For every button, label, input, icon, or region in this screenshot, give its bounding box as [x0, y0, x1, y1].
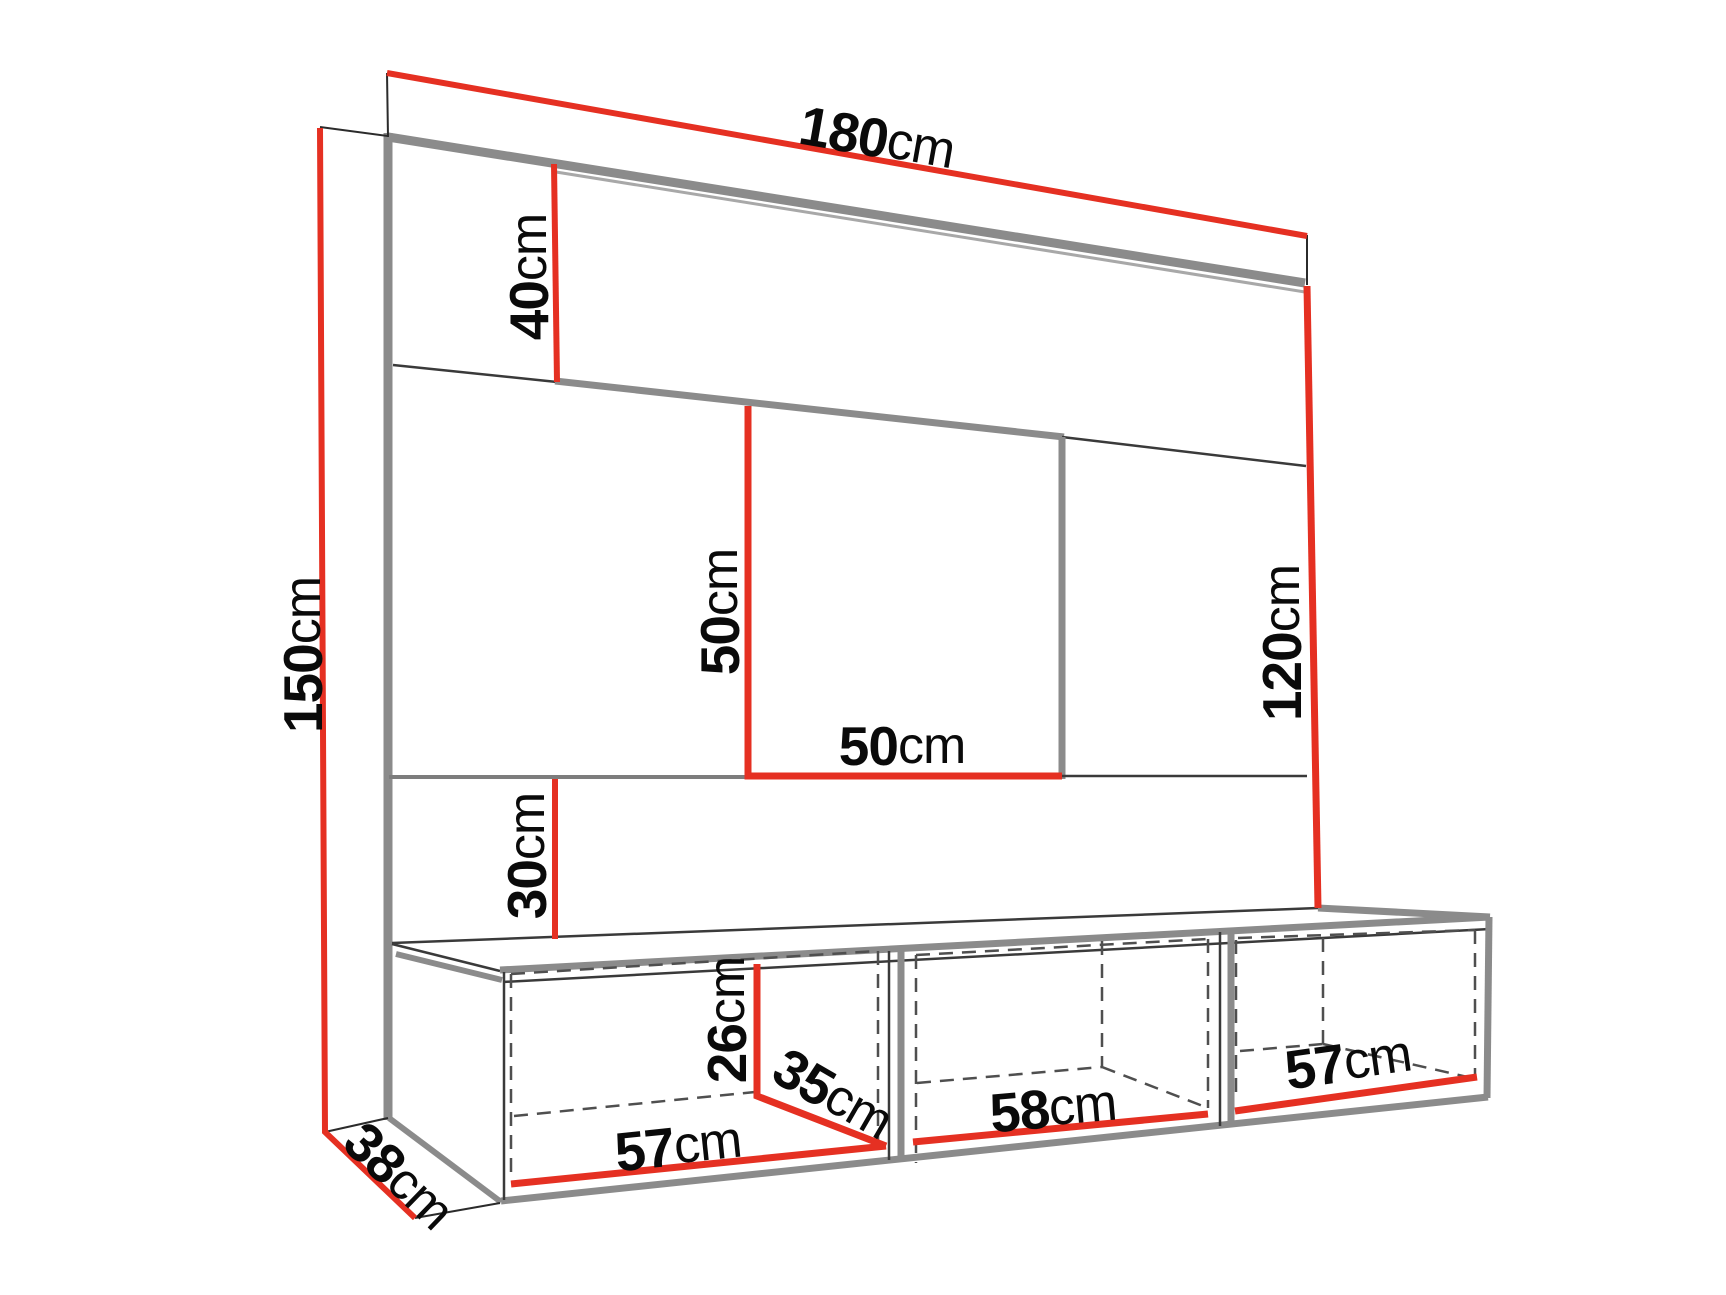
dim-line-total-height-150-and-depth-38 — [320, 128, 415, 1218]
label-cabinet-middle-width: 58cm — [987, 1072, 1118, 1145]
label-total-width: 180cm — [795, 94, 959, 182]
stand-right-edge — [1487, 917, 1489, 1098]
label-cabinet-left-width: 57cm — [612, 1109, 744, 1184]
label-recess-width: 50cm — [839, 715, 966, 777]
panel-top-edge-shadow — [556, 172, 1305, 292]
label-bottom-panel-height: 30cm — [496, 793, 558, 920]
top-strip-bottom-mid — [555, 381, 1064, 437]
top-strip-bottom-left — [393, 365, 557, 382]
stand-top-slab-underside — [503, 929, 1490, 982]
label-top-panel-height: 40cm — [498, 214, 560, 341]
ext-top-left-diagonal — [320, 127, 388, 136]
diagram-canvas: 180cm 150cm 40cm 50cm 50cm 120cm 30cm 26… — [0, 0, 1726, 1295]
cab2-inner-floor-right — [1102, 1067, 1208, 1108]
label-cabinet-inner-height: 26cm — [696, 957, 758, 1084]
label-total-height: 150cm — [272, 577, 334, 733]
label-cabinet-inner-depth: 35cm — [763, 1036, 904, 1153]
top-strip-bottom-right — [1062, 437, 1306, 466]
label-right-panel-height: 120cm — [1251, 565, 1313, 721]
dimension-labels: 180cm 150cm 40cm 50cm 50cm 120cm 30cm 26… — [272, 94, 1415, 1242]
dimension-diagram: 180cm 150cm 40cm 50cm 50cm 120cm 30cm 26… — [0, 0, 1726, 1295]
label-base-depth: 38cm — [332, 1110, 466, 1242]
stand-front-top-edge — [500, 917, 1490, 970]
ext-top-left-vertical — [387, 73, 388, 137]
stand-top-right-edge — [1318, 908, 1490, 917]
label-recess-height: 50cm — [689, 549, 751, 676]
